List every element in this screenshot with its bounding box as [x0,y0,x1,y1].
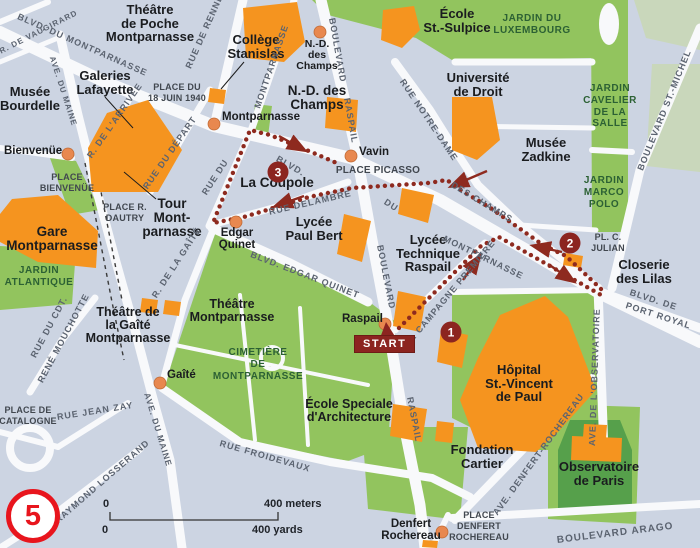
route-stop-3: 3 [268,162,289,183]
route-dot [215,211,219,215]
poi-label: École Speciale d'Architecture [305,398,393,424]
route-dot [412,182,416,186]
metro-station-dot [208,118,220,130]
route-dot [443,280,447,284]
station-label: Gaîté [167,369,196,381]
poi-label: Gare Montparnasse [6,225,98,253]
metro-station-dot [314,26,326,38]
poi-label: Théâtre de Poche Montparnasse [106,3,194,44]
building [208,88,226,104]
station-c-label: Edgar Quinet [219,227,255,251]
route-dot [588,277,592,281]
route-dot [390,183,394,187]
route-dot [397,183,401,187]
route-start-badge: START [354,335,415,353]
street-circle [10,428,50,468]
route-dot [263,208,267,212]
route-dot [233,164,237,168]
street-line [592,150,632,152]
poi-label: Closerie des Lilas [616,258,672,285]
route-dot [567,257,571,261]
route-dot [319,154,323,158]
route-dot [524,231,528,235]
street-line [452,290,598,292]
route-dot [594,282,598,286]
park-label: CIMETIÈRE DE MONTPARNASSE [213,347,303,382]
route-dot [519,227,523,231]
place-label: PLACE DU 18 JUIN 1940 [148,82,206,104]
route-dot [244,137,248,141]
route-dot [306,149,310,153]
park-label: JARDIN MARCO POLO [584,175,624,210]
route-dot [585,285,589,289]
metro-station-dot [154,377,166,389]
route-dot [361,185,365,189]
route-dot [220,198,224,202]
route-dot [404,182,408,186]
route-dot [239,151,243,155]
route-dot [427,295,431,299]
scale-bar-line [110,512,278,520]
route-dot [223,191,227,195]
route-dot [529,253,533,257]
route-dot [599,287,603,291]
poi-label: Université de Droit [447,71,510,98]
poi-label: Lycée Paul Bert [285,215,342,242]
route-dot [541,260,545,264]
poi-label: Musée Zadkine [521,136,570,163]
route-dot [222,219,226,223]
park-label: JARDIN DU LUXEMBOURG [493,13,570,37]
route-dot [273,135,277,139]
route-dot [217,204,221,208]
route-dot [241,144,245,148]
route-dot [266,132,270,136]
route-dot [504,239,508,243]
route-dot [448,275,452,279]
place-label: PLACE DE CATALOGNE [0,405,57,427]
station-label: Vavin [359,146,389,158]
metro-station-dot [345,150,357,162]
route-dot [243,215,247,219]
route-dot [432,290,436,294]
route-dot [332,160,336,164]
building [381,6,420,48]
park-label: JARDIN ATLANTIQUE [5,265,74,289]
route-dot [510,242,514,246]
station-label: Bienvenüe [4,145,62,157]
route-dot [516,246,520,250]
route-dot [447,179,451,183]
route-dot [578,267,582,271]
route-dot [579,281,583,285]
park-label: JARDIN CAVELIER DE LA SALLE [583,83,637,130]
route-dot [257,210,261,214]
route-stop-1: 1 [441,322,462,343]
route-dot [228,177,232,181]
poi-label: Fondation Cartier [451,443,514,470]
route-dot [535,257,539,261]
station-c-label: Denfert Rochereau [381,518,440,542]
route-dot [562,253,566,257]
poi-label: N.-D. des Champs [288,84,347,112]
map-number-badge: 5 [6,489,60,543]
route-dot [250,212,254,216]
scale-meters-label: 400 meters [264,498,322,510]
place-label: PL. C. JULIAN [591,232,625,254]
place-label: PLACE R. DAUTRY [103,202,147,224]
building [435,421,454,443]
route-dot [354,186,358,190]
metro-station-dot [62,148,74,160]
route-dot [231,171,235,175]
route-dot [573,262,577,266]
route-dot [247,131,251,135]
route-dot [407,316,411,320]
scale-yards-label: 400 yards [252,524,303,536]
route-dot [530,235,534,239]
route-dot [383,184,387,188]
route-dot [591,289,595,293]
poi-label: Hôpital St.-Vincent de Paul [485,363,553,404]
paris-montparnasse-walk-map: Théâtre de Poche MontparnasseCollège Sta… [0,0,700,548]
route-dot [438,285,442,289]
route-dot [225,184,229,188]
scale-yards-zero: 0 [102,524,108,536]
route-dot [376,184,380,188]
poi-label: École St.-Sulpice [423,7,490,34]
route-dot [426,181,430,185]
poi-label: Théâtre Montparnasse [190,298,275,324]
route-dot [536,240,540,244]
route-dot [368,185,372,189]
street-line [215,0,243,122]
route-dot [212,218,216,222]
route-dot [513,223,517,227]
route-dot [397,326,401,330]
route-dot [497,235,501,239]
route-dot [422,300,426,304]
place-label: PLACE BIENVENÜE [40,172,94,194]
route-dot [313,151,317,155]
route-dot [419,181,423,185]
station-label: Raspail [342,313,383,325]
route-dot [523,249,527,253]
route-dot [326,157,330,161]
route-dot [598,292,602,296]
poi-label: Galeries Lafayette [76,69,133,96]
park-pond [599,3,619,45]
route-dot [252,129,256,133]
route-dot [236,157,240,161]
route-dot [583,272,587,276]
poi-label: Observatoire de Paris [559,460,639,487]
station-label: Montparnasse [222,111,300,123]
building [452,97,500,160]
poi-label: Théâtre de la Gaîté Montparnasse [86,306,171,345]
route-dot [440,179,444,183]
route-dot [412,311,416,315]
route-dot [417,305,421,309]
scale-meters-zero: 0 [103,498,109,510]
place-label: PLACE PICASSO [336,165,420,177]
route-dot [433,180,437,184]
route-dot [402,321,406,325]
route-dot [259,131,263,135]
poi-label: Musée Bourdelle [0,85,60,112]
route-stop-2: 2 [560,233,581,254]
